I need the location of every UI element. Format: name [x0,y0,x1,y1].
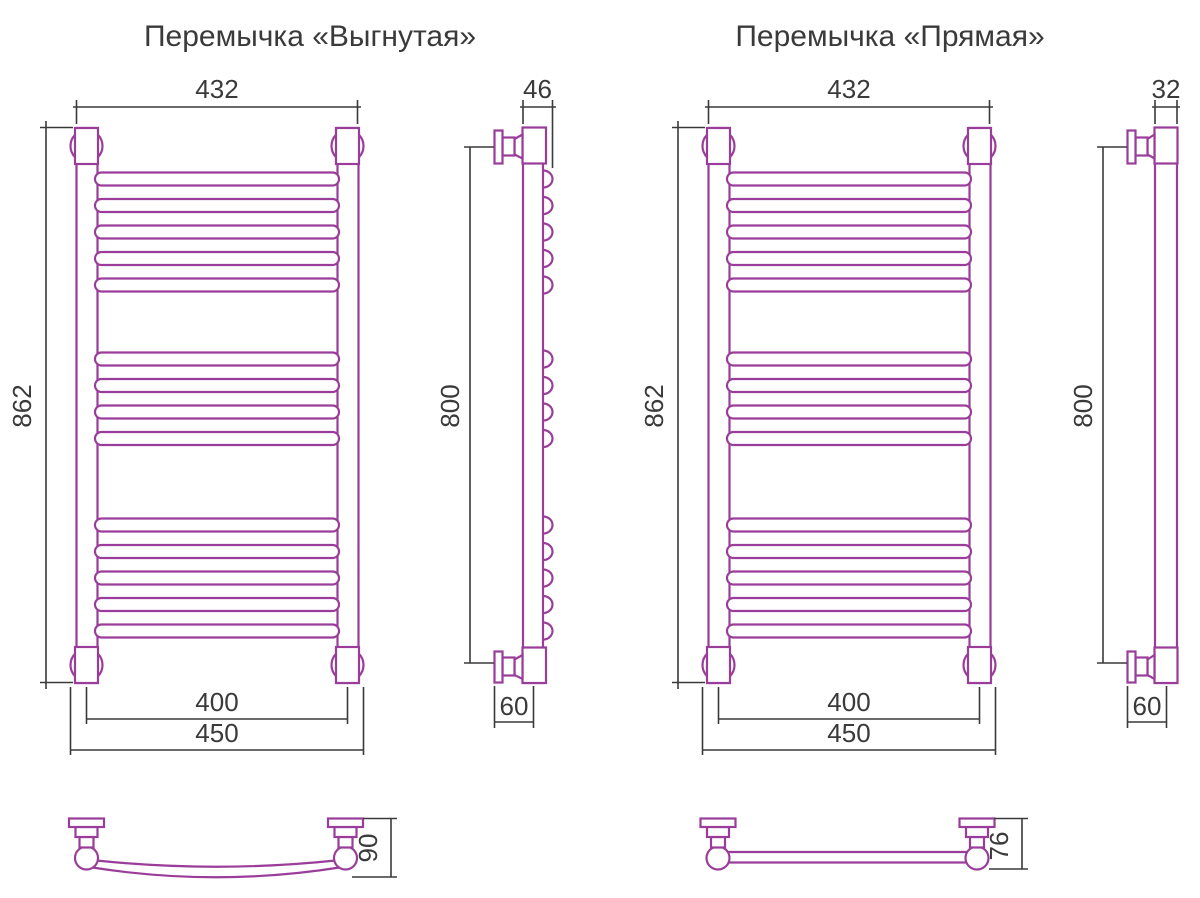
title-curved: Перемычка «Выгнутая» [144,20,476,53]
dim-height-curved: 862 [7,384,37,427]
rung-bump [543,377,553,394]
bracket-body [336,128,359,164]
rung [95,545,339,558]
rung [727,598,971,611]
bracket-body [75,128,98,164]
rung [727,353,971,366]
rung [95,625,339,638]
rung-bumps [543,171,553,640]
rung-bump [543,171,553,188]
rung [95,279,339,292]
rung [727,252,971,265]
wall-flange [1128,652,1136,683]
dim-mount-height-straight: 800 [1068,384,1098,427]
bracket-body [75,647,98,683]
rung [727,226,971,239]
rung [727,625,971,638]
side-view-straight [1128,128,1178,684]
rung [727,406,971,419]
dim-line-height [672,121,705,689]
side-tube [1155,128,1177,683]
foot-tube-end [75,847,98,870]
rung [727,379,971,392]
curved-bar-outer [93,868,340,878]
dim-overall-width-straight: 450 [827,718,870,748]
side-bottom-cap [523,648,547,684]
foot-neck [711,837,725,848]
foot-tube-end [707,847,730,870]
rung-bump [543,623,553,640]
bottom-view-straight [701,819,995,870]
dim-line-mount-height [1097,147,1127,663]
rung-bump [543,351,553,368]
dim-top-width-straight: 432 [827,74,870,104]
rung [727,432,971,445]
front-view-curved [71,128,364,683]
rung-bump [543,430,553,447]
foot-step [707,827,729,837]
foot-flange [69,819,104,828]
rung [727,173,971,186]
wall-flange [495,652,503,683]
side-bottom-cap [1155,648,1178,684]
rung [95,252,339,265]
dim-wall-offset-straight: 60 [1133,691,1162,721]
dim-bar-depth-straight: 76 [984,832,1014,861]
bracket-nut [503,658,515,676]
rung [95,432,339,445]
rung [95,598,339,611]
rung [727,545,971,558]
bracket-body [707,128,730,164]
dim-bar-depth-curved: 90 [353,834,383,863]
rung [95,173,339,186]
bracket-cone [515,655,523,679]
dim-overall-width-curved: 450 [195,718,238,748]
rung [95,406,339,419]
side-tube [523,128,543,683]
rung [95,519,339,532]
dim-side-depth-straight: 32 [1152,74,1181,104]
bracket-nut [503,138,515,156]
rung-bump [543,517,553,534]
bottom-view-curved [69,819,363,878]
dim-side-depth-curved: 46 [523,74,552,104]
side-view-curved [495,128,553,684]
rung-bump [543,543,553,560]
rung [95,353,339,366]
foot-flange [701,819,736,828]
dim-mount-height-curved: 800 [435,384,465,427]
bracket-nut [1136,658,1148,676]
foot-flange [328,819,363,828]
curved-bar-inner [97,861,336,867]
dim-height-straight: 862 [639,384,669,427]
wall-flange [1128,131,1136,164]
foot-neck [339,837,353,848]
bracket-body [336,647,359,683]
dim-line-height [40,121,73,689]
foot-neck [80,837,94,848]
left-tube [77,128,98,683]
bracket-body [968,647,991,683]
rung-bump [543,404,553,421]
rung [95,199,339,212]
title-straight: Перемычка «Прямая» [735,20,1044,53]
rung-bump [543,197,553,214]
rung-bump [543,250,553,267]
dim-line-mount-height [464,147,494,663]
dim-top-width-curved: 432 [195,74,238,104]
side-top-cap [523,128,547,164]
drawing-canvas: Перемычка «Выгнутая» Перемычка «Прямая» … [0,0,1200,898]
rung-bump [543,277,553,294]
dim-mount-spacing-curved: 400 [195,687,238,717]
rung [95,226,339,239]
bracket-body [968,128,991,164]
rung-bump [543,570,553,587]
technical-drawing: Перемычка «Выгнутая» Перемычка «Прямая» … [0,0,1200,898]
rung [727,199,971,212]
dim-wall-offset-curved: 60 [500,691,529,721]
rung-bump [543,224,553,241]
rung-bump [543,596,553,613]
rung [727,279,971,292]
bracket-nut [1136,138,1148,156]
foot-flange [960,819,995,828]
wall-flange [495,131,503,164]
bracket-body [707,647,730,683]
rung [95,572,339,585]
rung [727,572,971,585]
right-tube [338,128,359,683]
rung [727,519,971,532]
rung [95,379,339,392]
side-top-cap [1155,128,1178,164]
dim-mount-spacing-straight: 400 [827,687,870,717]
front-view-straight [703,128,996,683]
foot-neck [970,837,984,848]
bracket-cone [515,135,523,159]
right-tube [970,128,991,683]
foot-step [76,827,98,837]
left-tube [709,128,730,683]
